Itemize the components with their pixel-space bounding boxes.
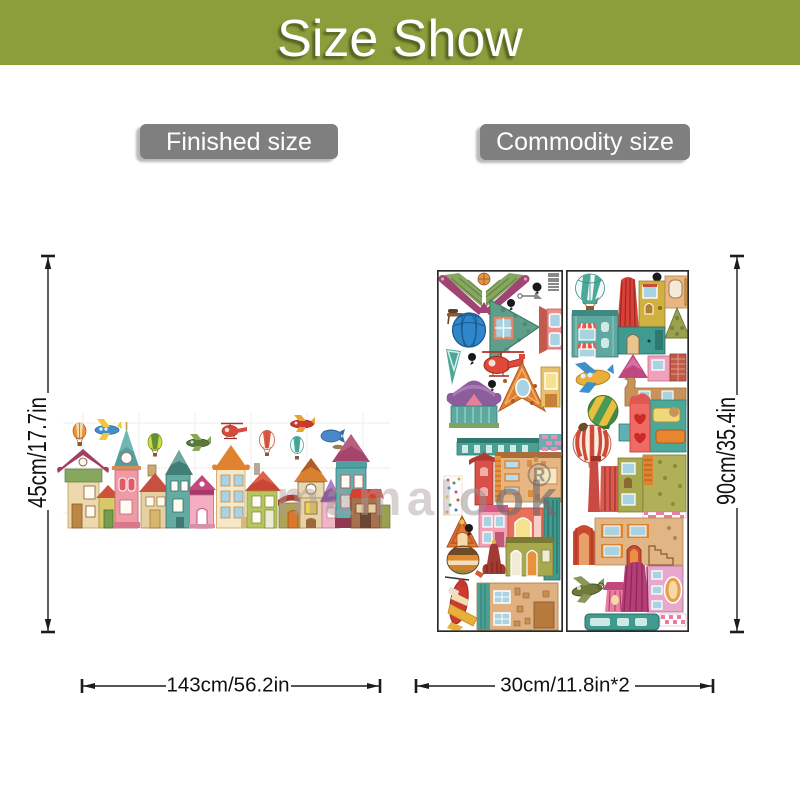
svg-text:30cm/11.8in*2: 30cm/11.8in*2 [500, 674, 630, 697]
svg-text:90cm/35.4in: 90cm/35.4in [711, 397, 741, 505]
svg-text:143cm/56.2in: 143cm/56.2in [166, 674, 289, 697]
svg-text:45cm/17.7in: 45cm/17.7in [22, 397, 52, 508]
